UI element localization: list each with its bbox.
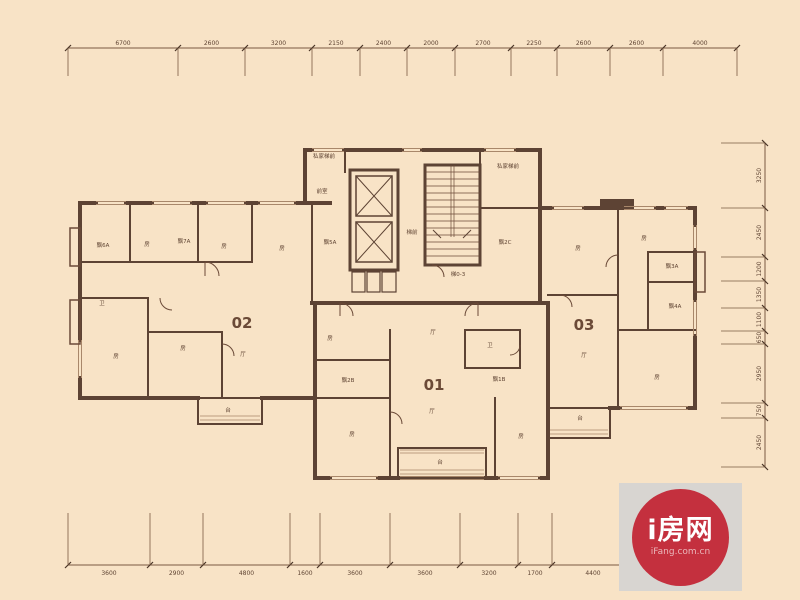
dimension-label: 3250 <box>756 168 763 183</box>
unit-number: 01 <box>424 376 445 394</box>
elevator-icon <box>350 170 398 292</box>
dimension-label: 750 <box>756 405 763 417</box>
dimension-label: 3600 <box>101 570 116 577</box>
dimension-label: 1700 <box>527 570 542 577</box>
room-label: 房 <box>279 244 285 252</box>
bay-windows <box>70 228 705 344</box>
watermark: i房网 iFang.com.cn <box>619 483 742 591</box>
watermark-url: iFang.com.cn <box>651 548 710 557</box>
room-label: 飘2C <box>499 239 512 246</box>
dimension-label: 2450 <box>756 435 763 450</box>
room-label: 厅 <box>240 351 246 358</box>
room-label: 房 <box>654 373 660 381</box>
room-label: 房 <box>327 334 333 342</box>
dimension-label: 1100 <box>756 312 763 327</box>
room-label: 房 <box>518 432 524 440</box>
room-label: 台 <box>437 458 443 466</box>
room-label: 房 <box>113 352 119 360</box>
unit-number: 02 <box>232 314 253 332</box>
room-label: 房 <box>144 240 150 248</box>
room-label: 房 <box>180 344 186 352</box>
room-label: 飘4A <box>669 303 682 310</box>
room-label: 房 <box>575 244 581 252</box>
room-label: 私家梯前 <box>313 152 336 160</box>
dimension-label: 2150 <box>328 40 343 47</box>
dimension-label: 1200 <box>756 261 763 276</box>
unit-number: 03 <box>574 316 595 334</box>
room-label: 房 <box>641 234 647 242</box>
dimension-label: 2600 <box>629 40 644 47</box>
room-label: 房 <box>349 430 355 438</box>
room-label: 飘1B <box>493 376 506 383</box>
dimension-label: 650 <box>756 332 763 344</box>
room-label: 飘6A <box>97 242 110 249</box>
room-label: 梯前 <box>406 228 418 236</box>
dimension-label: 2950 <box>756 366 763 381</box>
dimension-label: 1350 <box>756 287 763 302</box>
dimension-label: 2700 <box>475 40 490 47</box>
room-label: 台 <box>225 406 231 414</box>
room-label: 前室 <box>316 187 328 195</box>
room-label: 台 <box>577 414 583 422</box>
dimension-label: 6700 <box>115 40 130 47</box>
room-label: 飘7A <box>178 238 191 245</box>
dimension-label: 4000 <box>692 40 707 47</box>
floor-plan-page: 飘6A房飘7A房房卫房房厅台私家梯前前室飘5A梯前梯0-3私家梯前飘2C房厅卫飘… <box>0 0 800 600</box>
dimension-label: 3600 <box>347 570 362 577</box>
room-label: 房 <box>221 242 227 250</box>
unit-numbers: 020103 <box>232 314 595 394</box>
room-label: 梯0-3 <box>451 270 466 278</box>
room-label: 厅 <box>430 329 436 336</box>
dimension-label: 2250 <box>526 40 541 47</box>
room-label: 私家梯前 <box>497 162 520 170</box>
watermark-logo-circle: i房网 iFang.com.cn <box>632 489 729 586</box>
room-label: 厅 <box>581 352 587 359</box>
dimension-label: 1600 <box>297 570 312 577</box>
dimension-label: 4400 <box>585 570 600 577</box>
room-label: 厅 <box>429 408 435 415</box>
stairs-icon <box>425 165 480 265</box>
room-label: 卫 <box>487 342 493 349</box>
dimension-label: 4800 <box>239 570 254 577</box>
dimension-label: 2600 <box>204 40 219 47</box>
dimension-label: 3200 <box>481 570 496 577</box>
room-label: 飘5A <box>324 239 337 246</box>
dimension-label: 3600 <box>417 570 432 577</box>
watermark-brand: i房网 <box>647 517 713 544</box>
room-label: 卫 <box>99 300 105 307</box>
room-label: 飘3A <box>666 263 679 270</box>
dimension-label: 2900 <box>169 570 184 577</box>
dimension-label: 2000 <box>423 40 438 47</box>
room-label: 飘2B <box>342 377 355 384</box>
dimension-label: 3200 <box>271 40 286 47</box>
dimension-label: 2400 <box>376 40 391 47</box>
dimension-label: 2600 <box>576 40 591 47</box>
dimension-label: 2450 <box>756 225 763 240</box>
